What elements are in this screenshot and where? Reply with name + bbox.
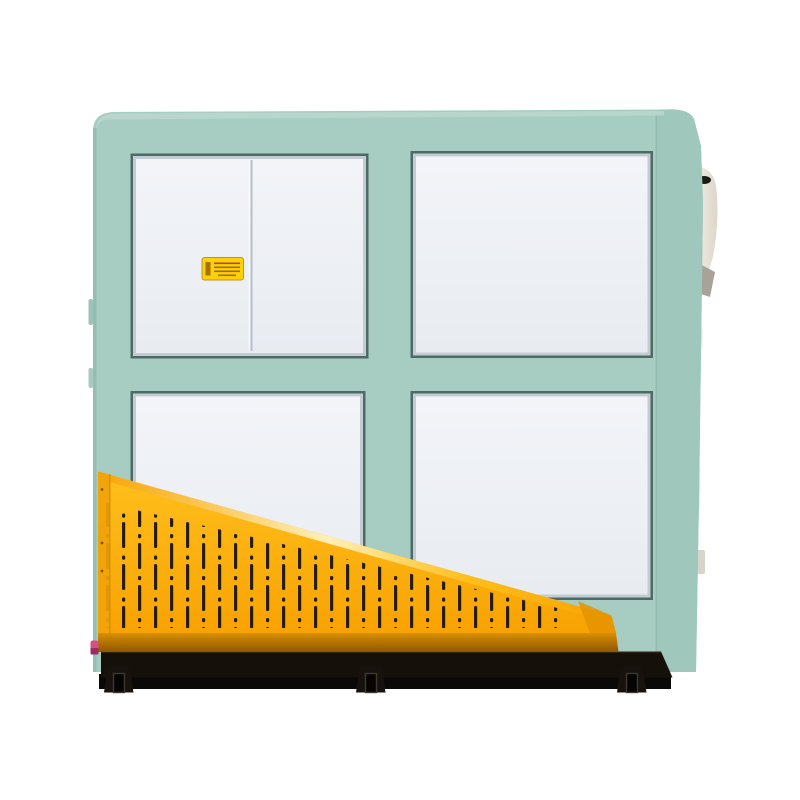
door-divider-shadow	[251, 160, 253, 351]
machine-photo	[0, 0, 800, 800]
warning-label-line-4	[218, 275, 236, 277]
foot-notch	[114, 674, 125, 693]
foot-notch	[366, 674, 377, 693]
guard-bottom-flange	[98, 633, 619, 652]
pink-fitting-shade	[91, 648, 99, 655]
left-hinge-lower	[89, 368, 94, 388]
base-rail	[101, 652, 673, 678]
panel-bottom-right	[411, 391, 654, 600]
foot-right	[617, 666, 647, 693]
panel-face	[416, 157, 648, 353]
cabinet-left-edge	[93, 128, 97, 672]
cabinet-front-side-seam	[656, 111, 657, 672]
warning-label-line-3	[214, 271, 240, 273]
guard-rivet-2	[101, 542, 104, 545]
panel-face	[416, 397, 648, 595]
warning-label	[202, 258, 244, 281]
product-photo-canvas	[0, 0, 800, 800]
panel-top-right	[411, 151, 654, 358]
machine-base	[99, 652, 673, 693]
door-divider-highlight	[249, 160, 251, 351]
foot-left	[104, 666, 134, 693]
guard-left-flange-edge	[109, 474, 110, 633]
warning-label-symbol	[206, 262, 211, 276]
pink-fitting	[91, 641, 99, 655]
guard-rivet-3	[101, 570, 104, 573]
foot-center	[356, 666, 386, 693]
warning-label-line-1	[214, 263, 240, 265]
left-hinge-upper	[89, 299, 94, 325]
warning-label-line-2	[214, 267, 240, 269]
guard-left-flange	[98, 472, 110, 634]
cabinet-side-face	[656, 109, 703, 672]
foot-notch	[627, 674, 638, 693]
panel-top-left	[131, 154, 369, 359]
guard-rivet-1	[101, 488, 104, 491]
